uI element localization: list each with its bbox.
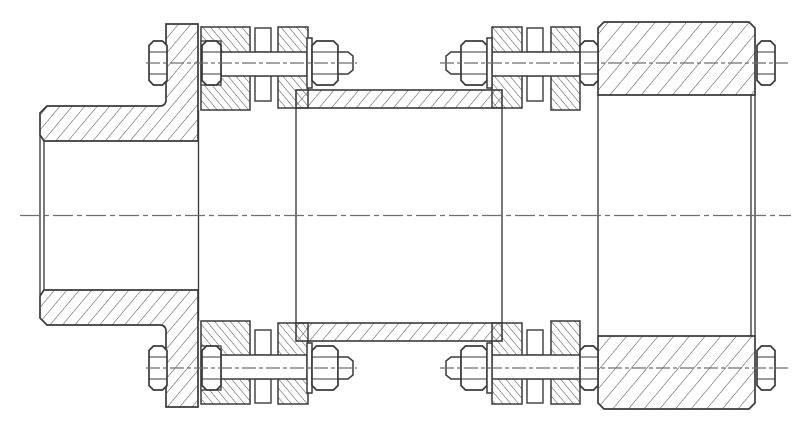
right-disc-pack-lower-bushing	[527, 76, 543, 101]
left-disc-pack-lower-bushing	[255, 330, 271, 355]
left-disc-pack-lower-bushing	[255, 76, 271, 101]
right-disc-pack-upper-bushing	[527, 28, 543, 52]
right-hub-section	[598, 22, 755, 95]
right-disc-pack-upper-bushing	[527, 379, 543, 403]
left-disc-pack-upper-bushing	[255, 379, 271, 403]
left-disc-pack-upper-bushing	[255, 28, 271, 52]
bolt-shank	[221, 355, 307, 379]
section-view-canvas	[0, 0, 810, 433]
bolt-shank	[492, 355, 581, 379]
bolt-shank	[492, 52, 581, 76]
right-hub-section	[598, 336, 755, 409]
spacer-tube-wall	[296, 90, 502, 108]
spacer-tube-wall	[296, 323, 502, 341]
bolt-shank	[221, 52, 307, 76]
right-disc-pack-lower-bushing	[527, 330, 543, 355]
coupling-sectional-drawing	[0, 0, 810, 433]
